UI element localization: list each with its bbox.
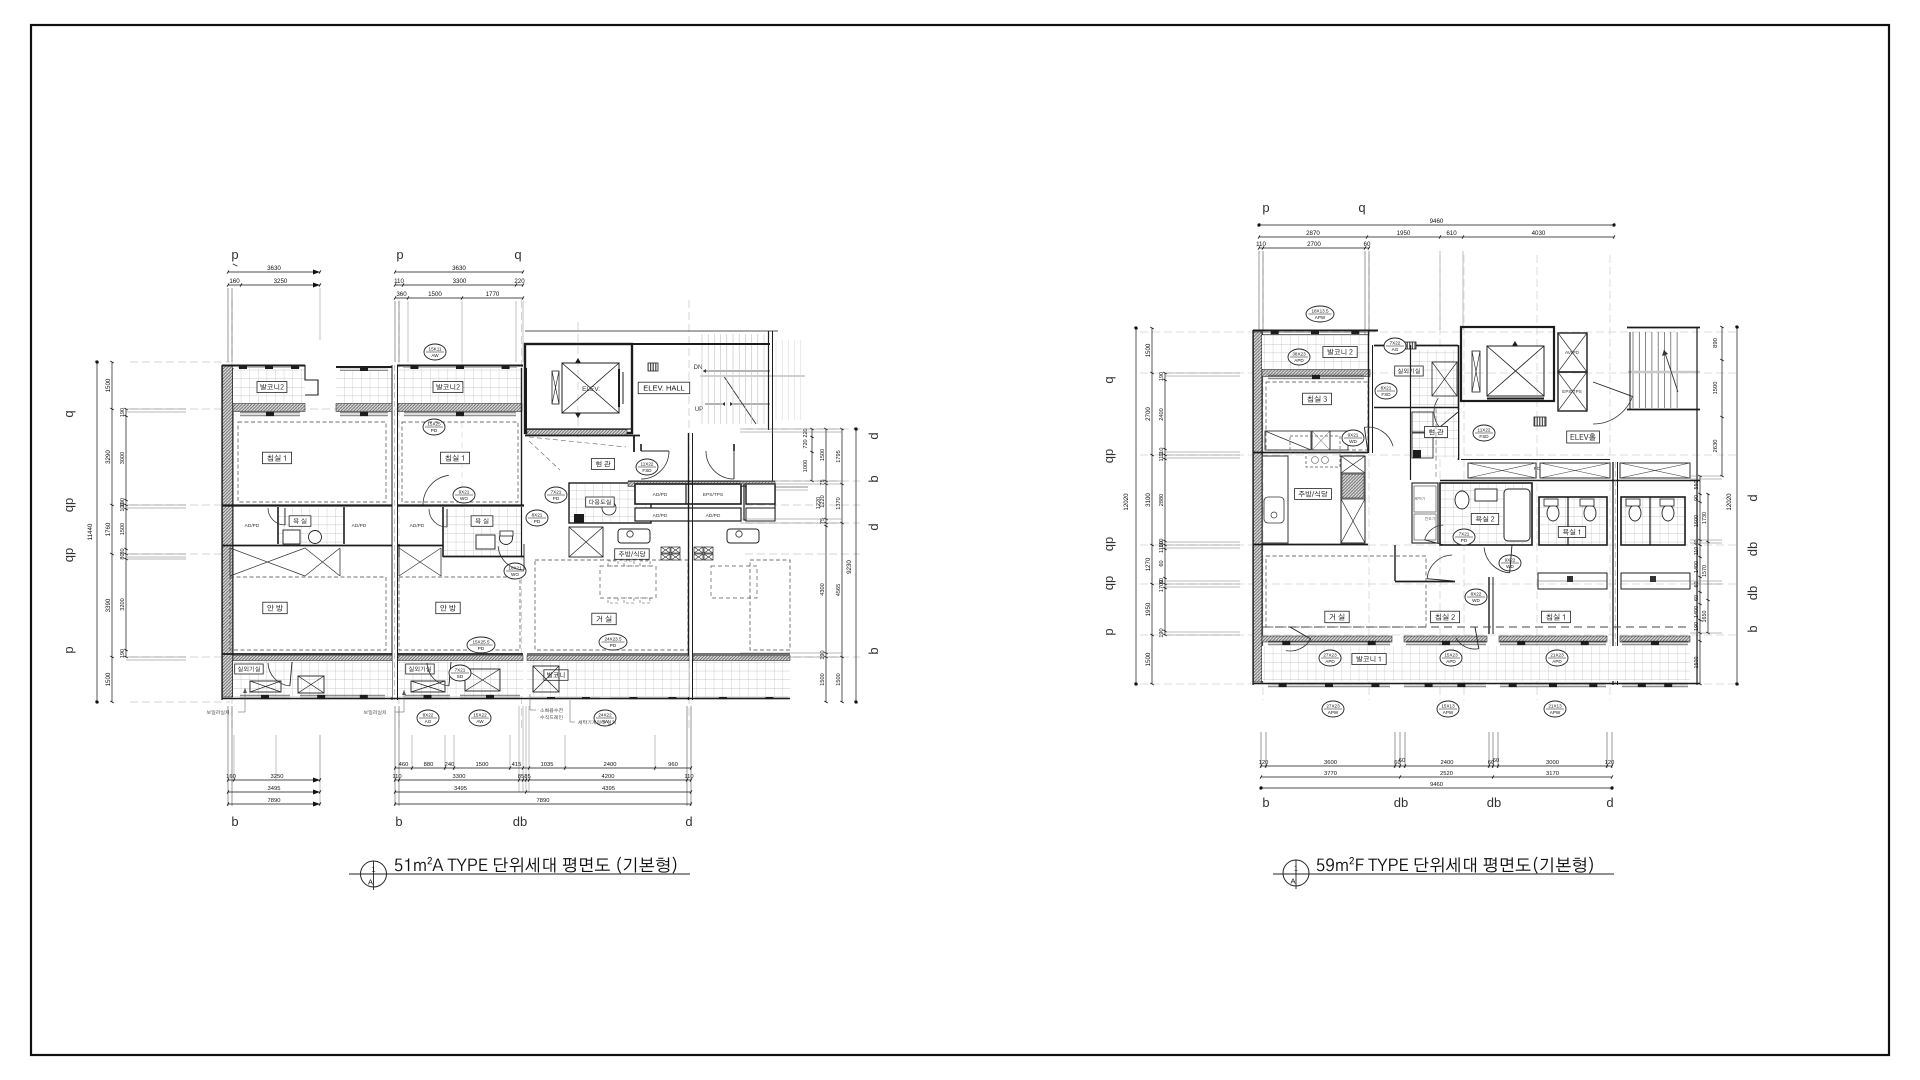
svg-text:15X22: 15X22 (473, 712, 487, 717)
svg-text:7X21: 7X21 (551, 489, 562, 494)
svg-text:ELEV. HALL: ELEV. HALL (643, 384, 684, 393)
svg-text:15X23: 15X23 (1444, 652, 1458, 657)
svg-text:1760: 1760 (105, 522, 112, 536)
svg-text:21X13: 21X13 (1548, 703, 1562, 708)
svg-text:3100: 3100 (1145, 493, 1152, 507)
svg-text:2400: 2400 (1159, 408, 1165, 420)
svg-text:ELEV.: ELEV. (582, 386, 600, 393)
svg-text:PD: PD (1461, 538, 1468, 543)
svg-text:p: p (61, 646, 76, 653)
svg-text:11440: 11440 (87, 523, 94, 540)
svg-text:EPS/TPS: EPS/TPS (1562, 389, 1581, 394)
svg-text:360: 360 (396, 291, 407, 298)
svg-text:11X22: 11X22 (1478, 427, 1491, 432)
svg-text:1950: 1950 (1397, 230, 1411, 237)
svg-text:EPS/TPS: EPS/TPS (703, 492, 723, 498)
svg-text:PD: PD (431, 428, 438, 433)
svg-text:190: 190 (1159, 372, 1165, 381)
svg-text:AD/PD: AD/PD (653, 513, 668, 519)
svg-text:APD: APD (1552, 659, 1562, 664)
svg-text:DN: DN (694, 365, 703, 371)
svg-text:190: 190 (1159, 628, 1165, 637)
svg-text:720: 720 (803, 439, 809, 448)
svg-text:8X21: 8X21 (532, 512, 543, 517)
svg-text:21X23: 21X23 (1550, 652, 1564, 657)
svg-text:PD: PD (610, 643, 617, 648)
svg-text:3495: 3495 (268, 786, 281, 792)
svg-text:1: 1 (1294, 864, 1298, 873)
svg-text:220: 220 (803, 428, 809, 437)
svg-text:FSD: FSD (1479, 434, 1489, 439)
svg-text:AG: AG (425, 719, 432, 724)
svg-text:b: b (395, 814, 402, 829)
svg-text:880: 880 (424, 762, 434, 768)
svg-text:90: 90 (1694, 495, 1700, 501)
svg-text:2400: 2400 (1441, 760, 1454, 766)
svg-text:3000: 3000 (120, 452, 126, 464)
svg-text:9230: 9230 (846, 560, 853, 574)
svg-text:2880: 2880 (1159, 494, 1165, 506)
svg-text:APD: APD (1325, 659, 1335, 664)
svg-text:APD: APD (1294, 358, 1304, 363)
svg-text:AD/PD: AD/PD (706, 513, 721, 519)
svg-text:1950: 1950 (1145, 602, 1152, 616)
svg-text:3495: 3495 (454, 786, 467, 792)
svg-text:WD: WD (1472, 598, 1480, 603)
svg-text:AD/PD: AD/PD (352, 523, 367, 529)
svg-text:7X21: 7X21 (1459, 531, 1470, 536)
svg-text:1730: 1730 (1702, 512, 1708, 524)
svg-text:1500: 1500 (120, 523, 126, 535)
svg-text:db: db (1745, 586, 1760, 600)
svg-text:qp: qp (1101, 449, 1116, 463)
svg-text:2700: 2700 (1307, 241, 1321, 248)
svg-text:7X22: 7X22 (1390, 340, 1401, 345)
svg-text:1500: 1500 (836, 673, 842, 685)
svg-text:1400: 1400 (1694, 606, 1700, 618)
svg-text:415: 415 (512, 762, 522, 768)
svg-text:80: 80 (120, 553, 126, 559)
svg-text:8X22: 8X22 (423, 712, 434, 717)
svg-text:460: 460 (399, 762, 409, 768)
svg-text:27X23: 27X23 (1323, 652, 1337, 657)
svg-text:100: 100 (120, 502, 126, 511)
svg-text:9X21: 9X21 (1348, 432, 1359, 437)
svg-text:60: 60 (1399, 758, 1405, 764)
svg-text:WD: WD (1349, 439, 1357, 444)
svg-text:1100: 1100 (1159, 541, 1165, 553)
svg-text:3630: 3630 (267, 265, 281, 272)
svg-text:4200: 4200 (602, 774, 615, 780)
svg-text:15K11: 15K11 (429, 346, 442, 351)
svg-text:60: 60 (1159, 560, 1165, 566)
svg-text:db: db (1394, 795, 1408, 810)
svg-text:110: 110 (1694, 547, 1700, 556)
svg-text:1500: 1500 (1145, 343, 1152, 357)
svg-text:27X23: 27X23 (1326, 703, 1340, 708)
svg-text:2520: 2520 (1440, 771, 1453, 777)
svg-text:db: db (1487, 795, 1501, 810)
svg-text:1500: 1500 (476, 762, 489, 768)
svg-text:85: 85 (524, 774, 530, 780)
svg-text:610: 610 (1446, 230, 1457, 237)
svg-text:40: 40 (1694, 540, 1700, 546)
svg-text:11X22: 11X22 (641, 461, 654, 466)
svg-text:3000: 3000 (1546, 760, 1559, 766)
svg-text:110: 110 (394, 278, 404, 285)
svg-text:110: 110 (392, 774, 401, 780)
svg-text:38X23: 38X23 (1292, 351, 1306, 356)
svg-text:p: p (231, 247, 238, 262)
svg-text:AW: AW (431, 353, 439, 358)
svg-text:1035: 1035 (541, 762, 554, 768)
svg-text:q: q (61, 410, 76, 417)
svg-text:120: 120 (1605, 760, 1615, 766)
svg-text:1500: 1500 (428, 291, 442, 298)
svg-text:PD: PD (553, 496, 560, 501)
svg-text:3300: 3300 (453, 774, 466, 780)
svg-text:18X13.5: 18X13.5 (1311, 308, 1329, 313)
svg-text:12020: 12020 (1123, 493, 1130, 511)
svg-text:190: 190 (120, 408, 126, 417)
svg-text:qp: qp (1101, 537, 1116, 551)
svg-text:160: 160 (226, 774, 236, 780)
svg-text:960: 960 (668, 762, 678, 768)
svg-text:db: db (513, 814, 527, 829)
svg-text:p: p (1262, 200, 1269, 215)
svg-text:AV/PD: AV/PD (1565, 350, 1580, 356)
svg-text:3600: 3600 (1324, 760, 1337, 766)
svg-text:8X21: 8X21 (1381, 385, 1392, 390)
svg-text:85: 85 (518, 774, 524, 780)
svg-text:3290: 3290 (105, 450, 112, 464)
svg-text:1500: 1500 (1694, 657, 1700, 669)
svg-text:b: b (1745, 625, 1760, 632)
svg-text:3300: 3300 (453, 278, 467, 285)
svg-text:24X23.5: 24X23.5 (604, 636, 622, 641)
svg-text:12020: 12020 (1726, 493, 1733, 511)
svg-text:160: 160 (229, 278, 240, 285)
svg-text:1500: 1500 (105, 378, 112, 392)
svg-text:120: 120 (1259, 760, 1269, 766)
svg-text:3250: 3250 (274, 278, 288, 285)
svg-text:FSD: FSD (642, 468, 652, 473)
svg-text:1500: 1500 (1145, 652, 1152, 666)
svg-text:2630: 2630 (1713, 440, 1719, 453)
svg-text:9X21: 9X21 (459, 489, 470, 494)
svg-text:3170: 3170 (1546, 771, 1559, 777)
svg-text:4565: 4565 (836, 584, 842, 596)
svg-text:1500: 1500 (1694, 515, 1700, 527)
svg-text:15X25.5: 15X25.5 (472, 639, 490, 644)
svg-text:3250: 3250 (271, 774, 284, 780)
svg-text:4030: 4030 (1532, 230, 1546, 237)
svg-text:7890: 7890 (537, 798, 550, 804)
svg-text:AD/PD: AD/PD (653, 492, 668, 498)
svg-text:60: 60 (1364, 241, 1371, 248)
svg-text:190: 190 (1694, 622, 1700, 631)
svg-text:PD: PD (1534, 466, 1541, 472)
svg-text:2700: 2700 (1145, 407, 1152, 421)
svg-text:d: d (1606, 795, 1613, 810)
svg-text:110: 110 (684, 774, 693, 780)
svg-text:1650: 1650 (1702, 611, 1708, 623)
svg-text:WO: WO (460, 496, 468, 501)
svg-text:240: 240 (445, 762, 455, 768)
svg-text:60: 60 (1694, 582, 1700, 588)
svg-text:db: db (1745, 542, 1760, 556)
svg-text:3390: 3390 (105, 598, 112, 612)
svg-text:1500: 1500 (1713, 382, 1719, 395)
svg-text:110: 110 (1256, 241, 1266, 248)
svg-text:A: A (368, 878, 373, 887)
svg-text:7X21: 7X21 (455, 667, 466, 672)
svg-text:b: b (866, 475, 881, 482)
svg-text:1795: 1795 (836, 450, 842, 462)
svg-text:8X22: 8X22 (1471, 591, 1482, 596)
svg-text:190: 190 (120, 649, 126, 658)
svg-text:1770: 1770 (486, 291, 500, 298)
svg-text:1000: 1000 (803, 460, 809, 472)
svg-text:9460: 9460 (1430, 782, 1443, 788)
svg-text:FSD: FSD (1381, 392, 1391, 397)
svg-text:890: 890 (1713, 338, 1719, 348)
svg-text:p: p (396, 247, 403, 262)
svg-text:550: 550 (1694, 481, 1700, 490)
svg-text:1370: 1370 (836, 497, 842, 509)
svg-text:A: A (1290, 877, 1295, 886)
svg-text:d: d (866, 523, 881, 530)
svg-text:3770: 3770 (1324, 771, 1337, 777)
svg-text:PD: PD (534, 519, 541, 524)
svg-text:2400: 2400 (604, 762, 617, 768)
svg-text:APW: APW (1550, 710, 1561, 715)
svg-text:4395: 4395 (602, 786, 615, 792)
svg-text:b: b (866, 647, 881, 654)
svg-text:qp: qp (61, 498, 76, 512)
svg-text:110: 110 (1159, 453, 1165, 462)
svg-text:60: 60 (1493, 758, 1499, 764)
svg-text:190: 190 (820, 650, 826, 659)
svg-text:75: 75 (820, 479, 826, 485)
svg-text:1500: 1500 (820, 673, 826, 685)
svg-text:220: 220 (514, 278, 525, 285)
svg-text:60: 60 (1694, 595, 1700, 601)
svg-text:7890: 7890 (268, 798, 281, 804)
svg-text:AD/PD: AD/PD (245, 523, 260, 529)
svg-text:1400: 1400 (1694, 561, 1700, 573)
svg-text:24X22: 24X22 (598, 712, 612, 717)
svg-text:1500: 1500 (105, 672, 112, 686)
svg-text:1270: 1270 (1145, 557, 1152, 571)
svg-text:q: q (514, 247, 521, 262)
svg-text:AG: AG (1392, 347, 1399, 352)
svg-text:2870: 2870 (1306, 230, 1320, 237)
svg-text:1500: 1500 (820, 449, 826, 461)
svg-text:d: d (866, 432, 881, 439)
svg-text:b: b (1262, 795, 1269, 810)
svg-text:PD: PD (478, 646, 485, 651)
svg-text:b: b (231, 814, 238, 829)
svg-text:15X13: 15X13 (1441, 703, 1455, 708)
svg-text:qp: qp (1101, 576, 1116, 590)
svg-text:SD: SD (457, 674, 464, 679)
svg-text:9460: 9460 (1430, 218, 1444, 225)
svg-text:4300: 4300 (820, 583, 826, 595)
svg-text:APW: APW (1315, 315, 1326, 320)
svg-text:q: q (1358, 200, 1365, 215)
svg-text:3200: 3200 (120, 598, 126, 610)
svg-text:qp: qp (61, 548, 76, 562)
svg-text:d: d (685, 814, 692, 829)
svg-text:1: 1 (371, 865, 375, 874)
svg-text:1700: 1700 (1159, 580, 1165, 592)
svg-text:WO: WO (511, 572, 519, 577)
svg-text:AD/PD: AD/PD (410, 523, 425, 529)
svg-text:1570: 1570 (1702, 565, 1708, 577)
svg-text:1220: 1220 (816, 497, 822, 509)
svg-text:3630: 3630 (452, 265, 466, 272)
svg-text:q: q (1101, 376, 1116, 383)
svg-text:APW: APW (1328, 710, 1339, 715)
svg-text:APW: APW (1443, 710, 1454, 715)
svg-text:APD: APD (1446, 659, 1456, 664)
svg-text:AW: AW (476, 719, 484, 724)
svg-text:d: d (1745, 494, 1760, 501)
svg-text:p: p (1101, 628, 1116, 635)
